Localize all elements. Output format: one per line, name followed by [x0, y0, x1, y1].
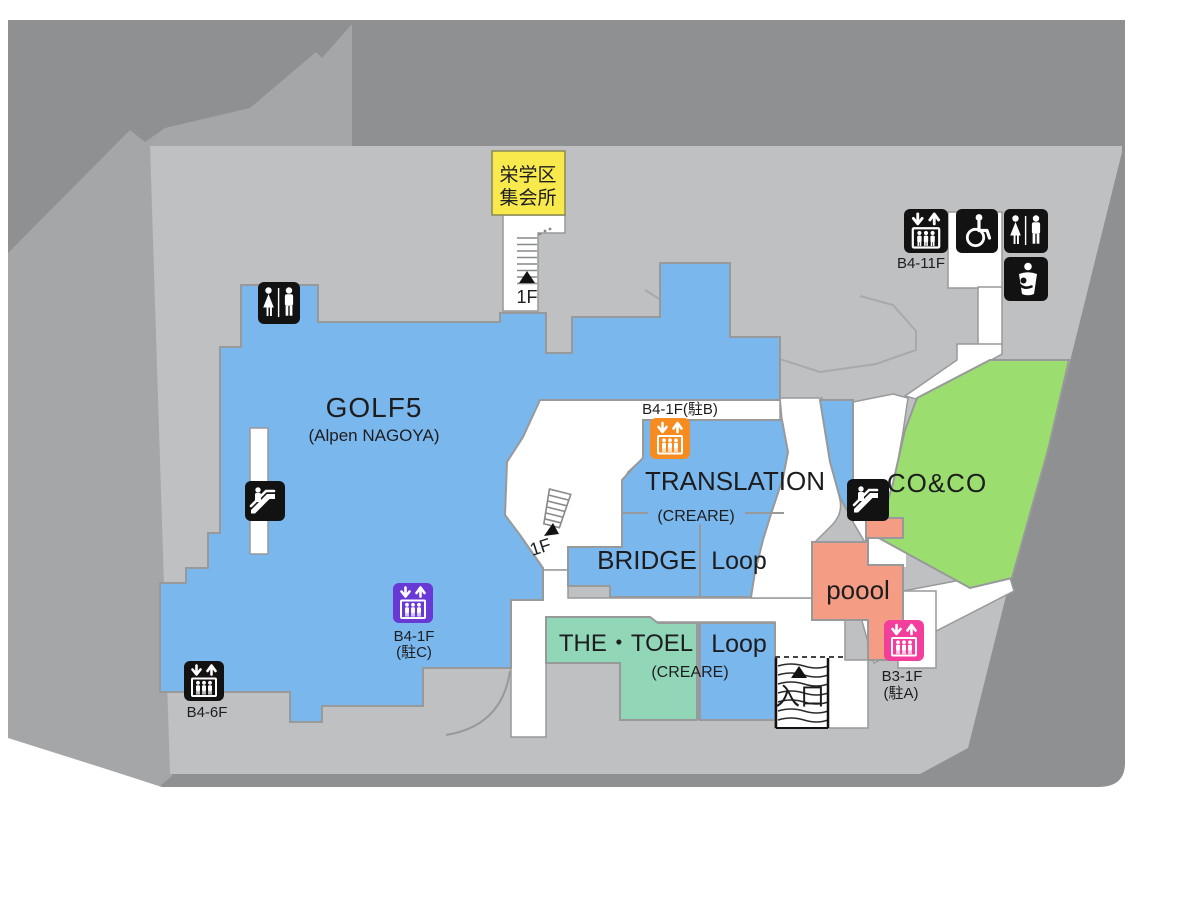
floor-map: 1F 1F — [0, 0, 1200, 900]
elevator-parking-c-label-1: B4-1F — [394, 628, 435, 645]
elevator-parking-c — [393, 583, 433, 623]
room-translation-label: TRANSLATION — [645, 466, 825, 496]
elevator-b4-11f-label: B4-11F — [897, 255, 945, 272]
elevator-b4-6f-label: B4-6F — [187, 704, 228, 721]
restroom-northeast — [1004, 209, 1048, 253]
restroom-west — [258, 282, 300, 324]
room-golf5-sublabel: (Alpen NAGOYA) — [308, 426, 439, 445]
elevator-parking-a-label-1: B3-1F — [882, 668, 923, 685]
room-bridge-label: BRIDGE — [597, 545, 697, 575]
room-loop-upper-label: Loop — [711, 547, 767, 575]
escalator-east — [847, 479, 889, 521]
entrance-label: 入口 — [775, 683, 825, 711]
room-meeting-hall-label-2: 集会所 — [499, 187, 556, 209]
elevator-b4-6f — [184, 661, 224, 701]
baby-room — [1004, 257, 1048, 301]
room-loop-lower-label: Loop — [711, 630, 767, 658]
room-the-toel-label: THE・TOEL — [559, 630, 693, 657]
elevator-parking-a — [884, 620, 924, 661]
room-coco-label: CO&CO — [887, 468, 987, 498]
escalator-west — [245, 481, 285, 521]
stairs-upper-floor-label: 1F — [516, 287, 537, 307]
room-the-toel-sublabel: (CREARE) — [651, 664, 728, 681]
room-poool-label: poool — [826, 575, 890, 605]
wheelchair-access — [956, 209, 998, 253]
elevator-b4-11f — [904, 209, 948, 253]
elevator-parking-b — [650, 418, 690, 459]
room-meeting-hall-label-1: 栄学区 — [499, 164, 556, 186]
elevator-parking-b-label: B4-1F(駐B) — [642, 401, 718, 418]
corridor-northeast-column — [978, 287, 1002, 345]
room-translation-sublabel: (CREARE) — [657, 508, 734, 525]
elevator-parking-a-label-2: (駐A) — [884, 685, 919, 702]
elevator-parking-c-label-2: (駐C) — [396, 644, 432, 661]
room-golf5-label: GOLF5 — [326, 392, 423, 423]
